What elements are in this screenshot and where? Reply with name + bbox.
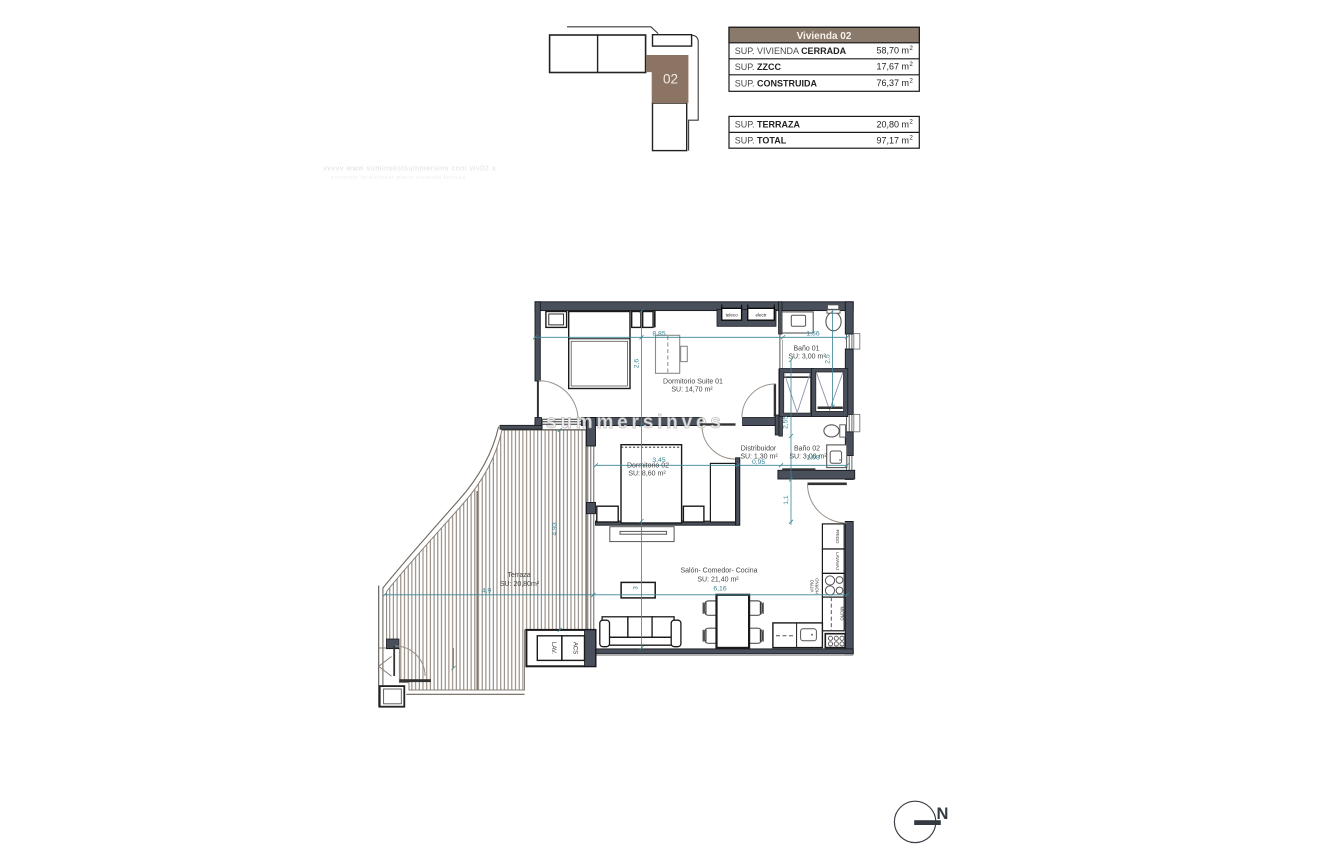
svg-text:4,9: 4,9 [482, 588, 492, 595]
svg-text:LAV.: LAV. [550, 642, 556, 654]
svg-text:SUP. VIVIENDA CERRADA: SUP. VIVIENDA CERRADA [735, 46, 847, 56]
svg-text:FRIGO: FRIGO [835, 530, 840, 544]
svg-text:Baño 01: Baño 01 [793, 346, 819, 353]
svg-text:SU: 20,80m²: SU: 20,80m² [500, 581, 540, 588]
svg-text:SU: 3,00 m²: SU: 3,00 m² [789, 454, 827, 461]
svg-text:SU: 14,70 m²: SU: 14,70 m² [671, 387, 713, 394]
svg-text:02: 02 [663, 72, 678, 87]
svg-text:Baño 02: Baño 02 [794, 446, 820, 453]
svg-text:6,16: 6,16 [713, 586, 726, 593]
svg-text:SUP. TOTAL: SUP. TOTAL [735, 136, 787, 146]
svg-text:Vivienda 02: Vivienda 02 [797, 31, 852, 42]
svg-text:2,6: 2,6 [634, 359, 641, 369]
svg-text:ACS: ACS [572, 642, 578, 654]
svg-text:HORNO: HORNO [815, 577, 820, 593]
svg-text:4,93: 4,93 [552, 522, 559, 535]
svg-text:SU: 1,30 m²: SU: 1,30 m² [740, 454, 778, 461]
svg-text:20,80 m: 20,80 m [876, 119, 909, 129]
svg-text:electr: electr [755, 313, 767, 318]
svg-text:SUP. ZZCC: SUP. ZZCC [735, 62, 782, 72]
svg-text:SU: 8,60 m²: SU: 8,60 m² [628, 471, 666, 478]
svg-text:SU: 21,40 m²: SU: 21,40 m² [697, 577, 739, 584]
svg-text:2,55: 2,55 [783, 416, 790, 429]
svg-text:58,70 m: 58,70 m [876, 46, 909, 56]
svg-text:LAVAVAJ: LAVAVAJ [835, 552, 840, 570]
svg-text:76,37 m: 76,37 m [876, 78, 909, 88]
svg-text:SU: 3,00 m²: SU: 3,00 m² [788, 354, 826, 361]
svg-text:Terraza: Terraza [507, 572, 530, 579]
svg-text:Dormitorio Suite 01: Dormitorio Suite 01 [663, 379, 723, 386]
svg-text:1,1: 1,1 [783, 495, 790, 505]
svg-text:teleco: teleco [726, 313, 739, 318]
svg-text:1,56: 1,56 [806, 330, 819, 337]
svg-text:Dormitorio 02: Dormitorio 02 [627, 462, 669, 469]
svg-text:SUP. CONSTRUIDA: SUP. CONSTRUIDA [735, 79, 818, 89]
svg-text:summersinves: summersinves [546, 412, 725, 433]
svg-text:N: N [937, 805, 949, 823]
svg-text:SUP. TERRAZA: SUP. TERRAZA [735, 120, 801, 130]
svg-text:17,67 m: 17,67 m [876, 62, 909, 72]
svg-text:vvvvv www suminvestsummersinv: vvvvv www suminvestsummersinv com viv02 … [323, 164, 496, 173]
svg-text:summers investment plano vivie: summers investment plano vivienda terraz… [331, 175, 466, 181]
svg-text:8,85: 8,85 [652, 330, 665, 337]
svg-text:MICRO: MICRO [840, 607, 845, 622]
svg-text:Distribuidor: Distribuidor [741, 446, 777, 453]
svg-text:97,17 m: 97,17 m [876, 135, 909, 145]
svg-text:Salón- Comedor- Cocina: Salón- Comedor- Cocina [680, 568, 757, 575]
